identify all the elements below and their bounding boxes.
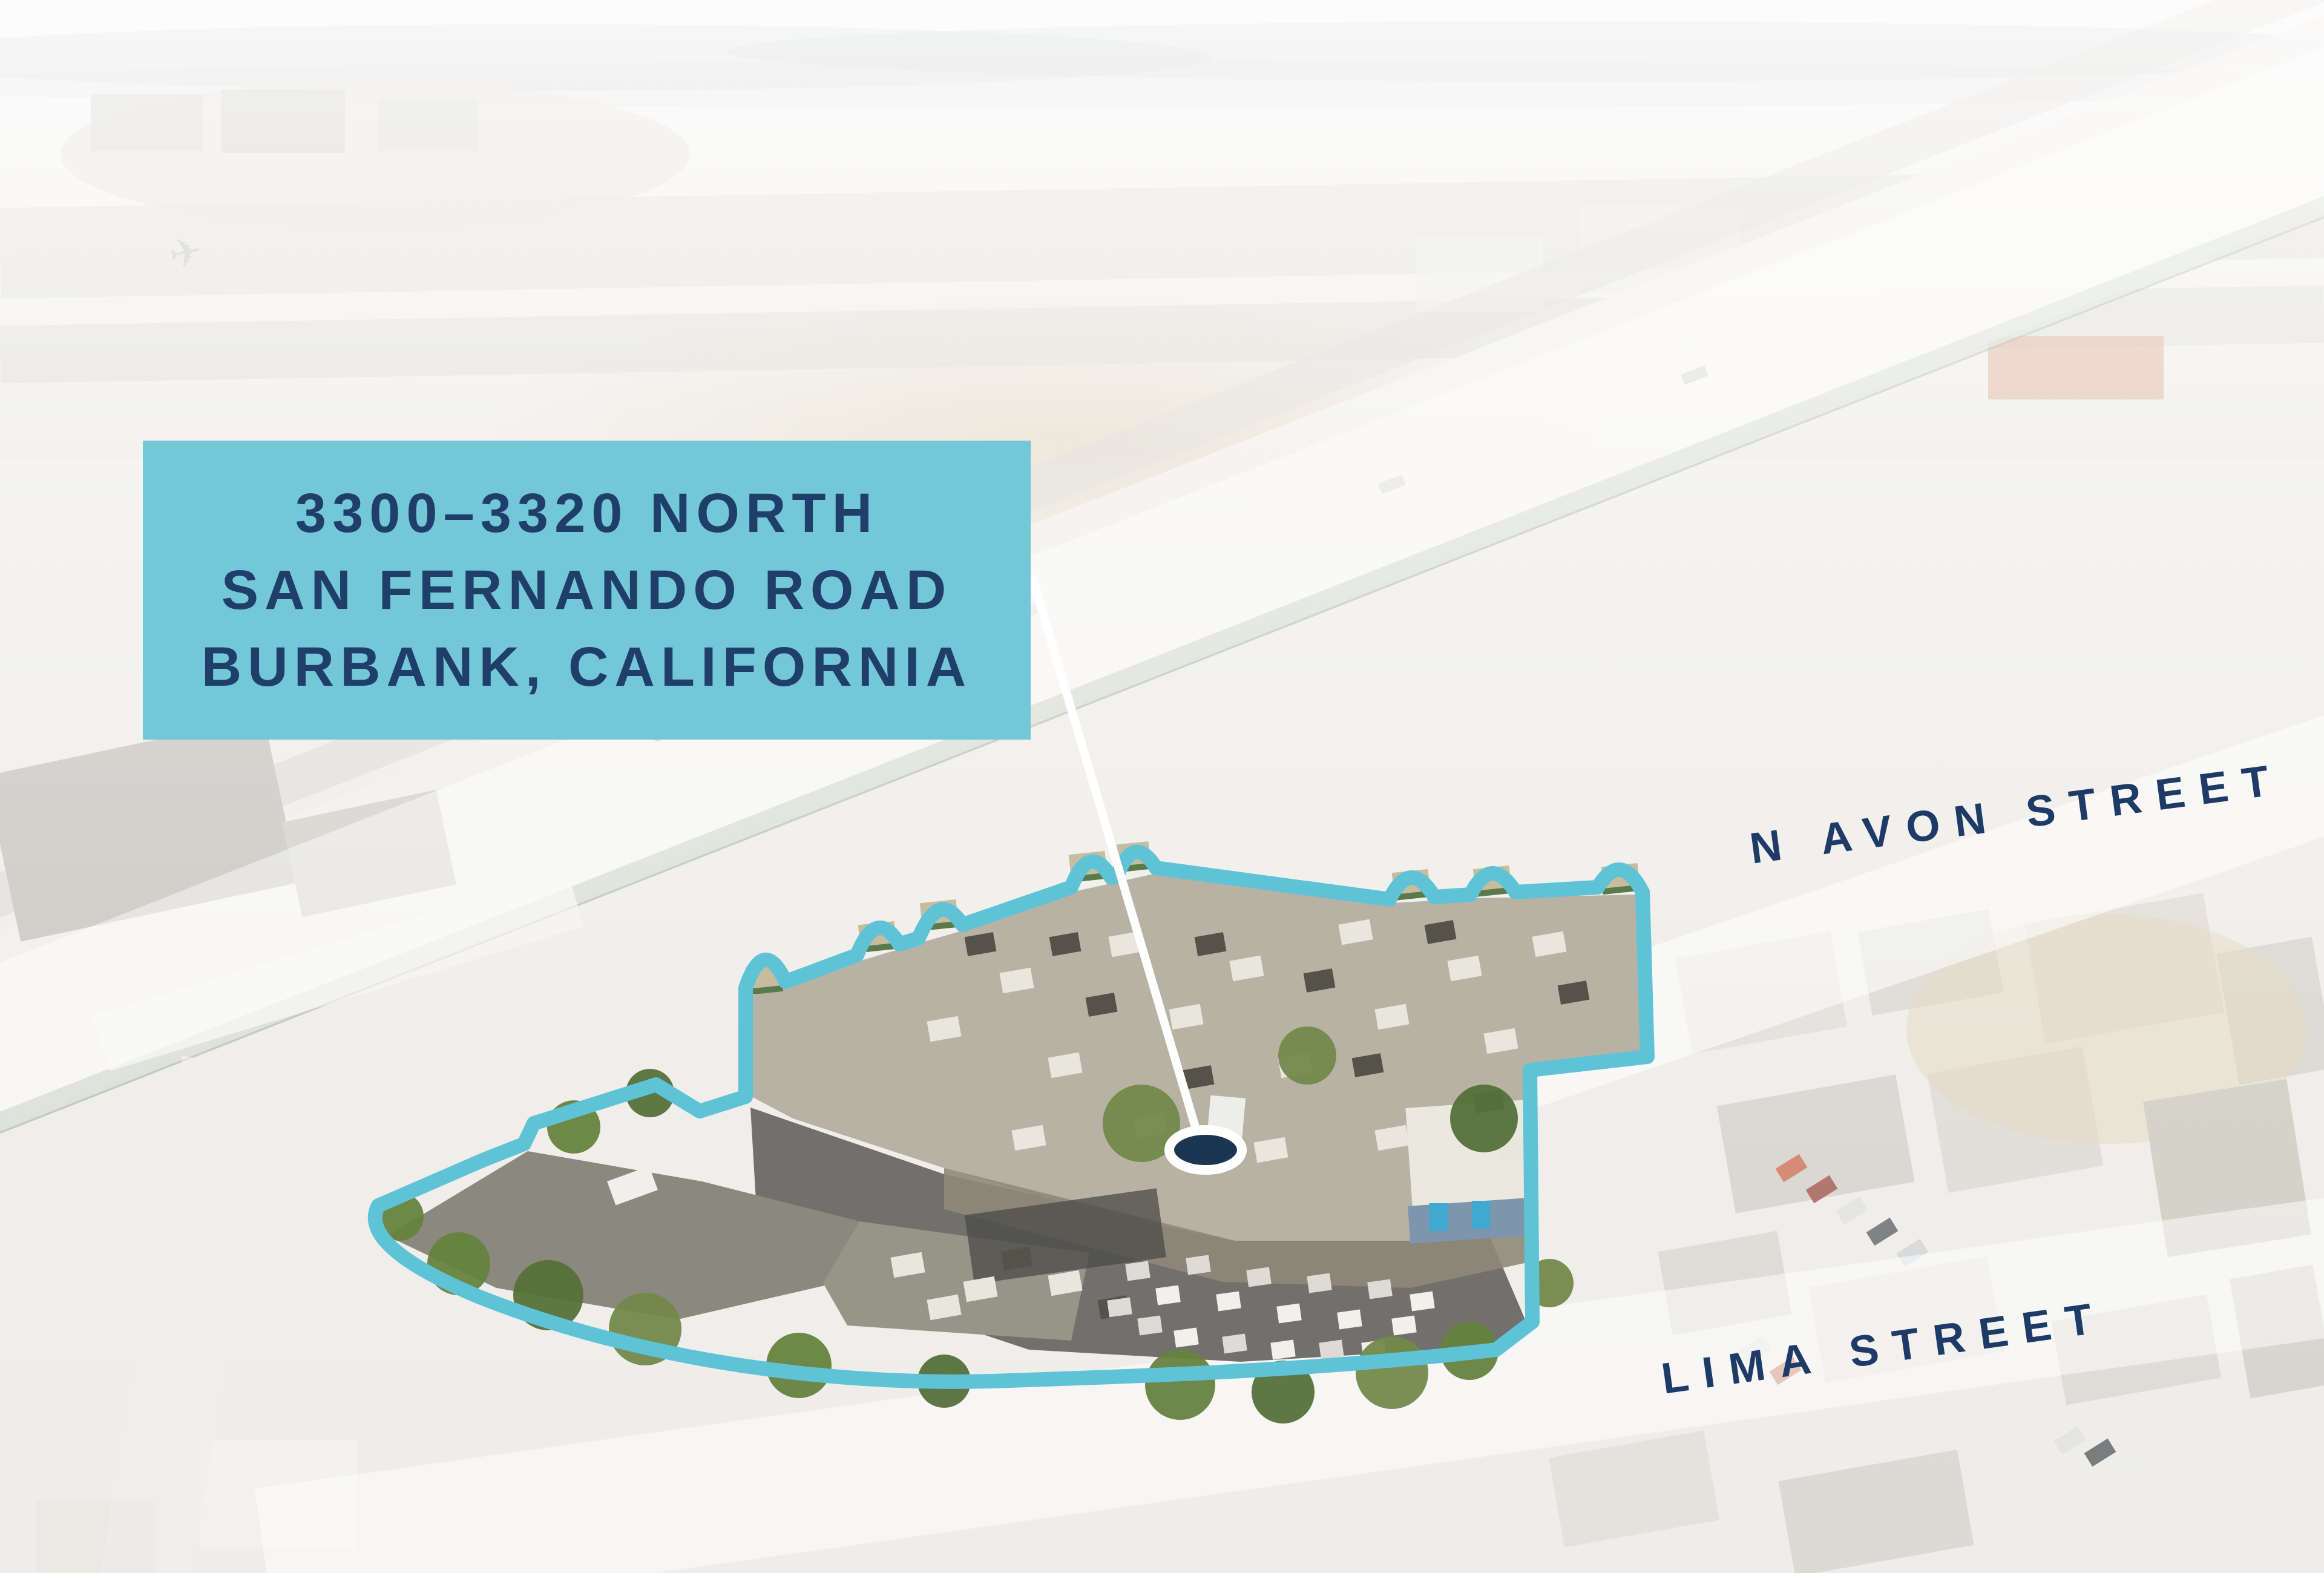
blue-arch-door (1472, 1201, 1490, 1229)
address-line-3: BURBANK, CALIFORNIA (202, 629, 972, 706)
address-label-box: 3300–3320 NORTH SAN FERNANDO ROAD BURBAN… (143, 441, 1031, 740)
address-line-1: 3300–3320 NORTH (295, 475, 878, 552)
address-line-2: SAN FERNANDO ROAD (222, 552, 953, 629)
aerial-photo-page: ✈ (0, 0, 2324, 1573)
blue-arch-door (1430, 1203, 1448, 1231)
location-marker (1169, 1130, 1242, 1170)
